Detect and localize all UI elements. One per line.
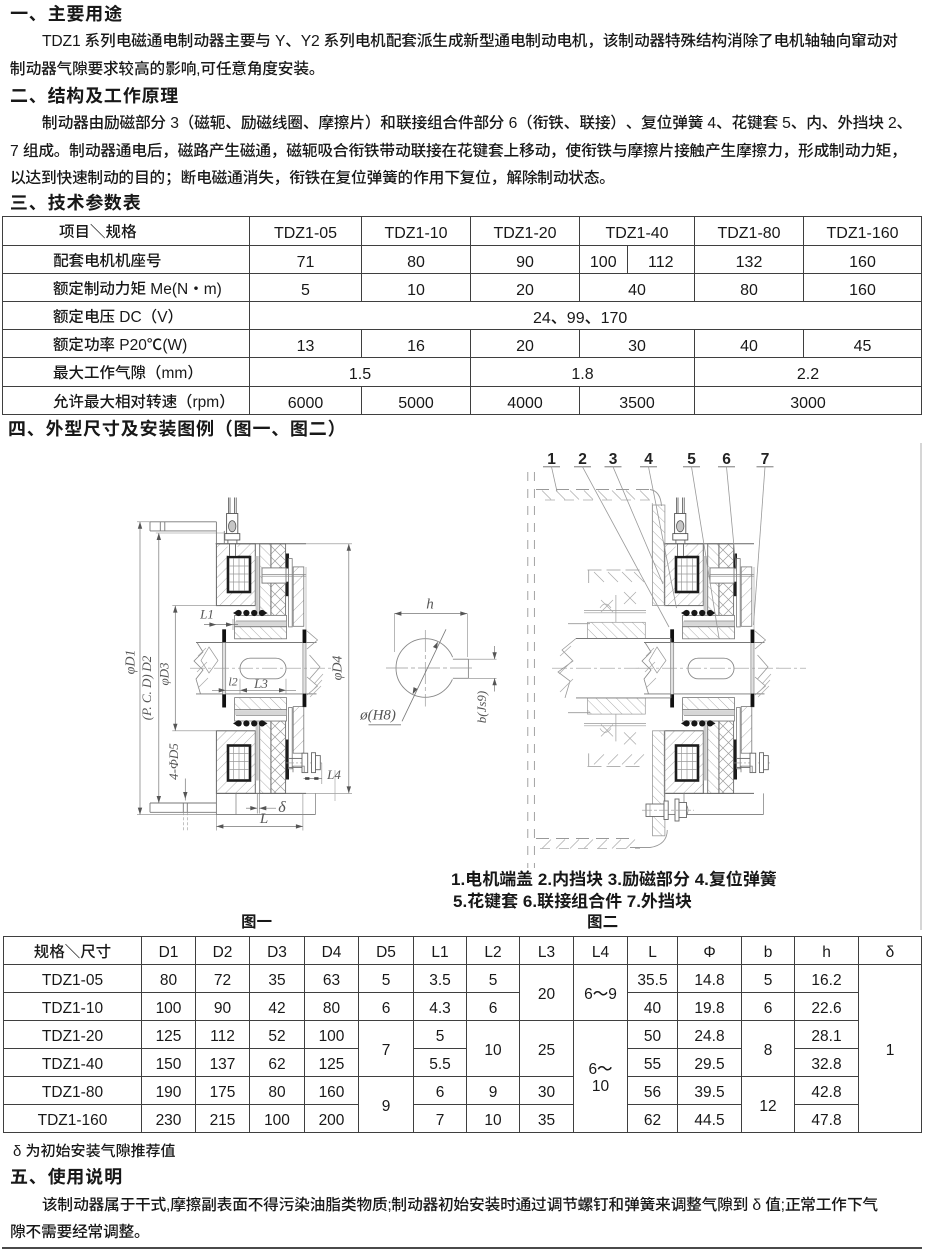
svg-text:(P. C. D) D2: (P. C. D) D2: [139, 655, 154, 720]
svg-text:φD4: φD4: [331, 656, 346, 681]
svg-text:ø(H8): ø(H8): [359, 708, 396, 724]
svg-text:L4: L4: [326, 767, 341, 782]
svg-text:2: 2: [578, 451, 587, 468]
svg-text:φD3: φD3: [156, 662, 171, 686]
svg-text:φD1: φD1: [124, 650, 139, 675]
svg-text:5: 5: [687, 451, 696, 468]
svg-text:l2: l2: [228, 675, 237, 689]
svg-text:4-ΦD5: 4-ΦD5: [166, 743, 181, 780]
svg-text:L: L: [259, 811, 268, 827]
svg-text:h: h: [426, 597, 434, 613]
svg-text:4: 4: [644, 451, 653, 468]
svg-text:L1: L1: [199, 607, 214, 622]
svg-text:L3: L3: [253, 676, 268, 691]
svg-text:7: 7: [761, 451, 770, 468]
svg-text:6: 6: [722, 451, 731, 468]
svg-text:b(Js9): b(Js9): [474, 691, 489, 724]
svg-text:3: 3: [609, 451, 618, 468]
svg-text:1: 1: [547, 451, 556, 468]
svg-text:δ: δ: [278, 799, 286, 816]
